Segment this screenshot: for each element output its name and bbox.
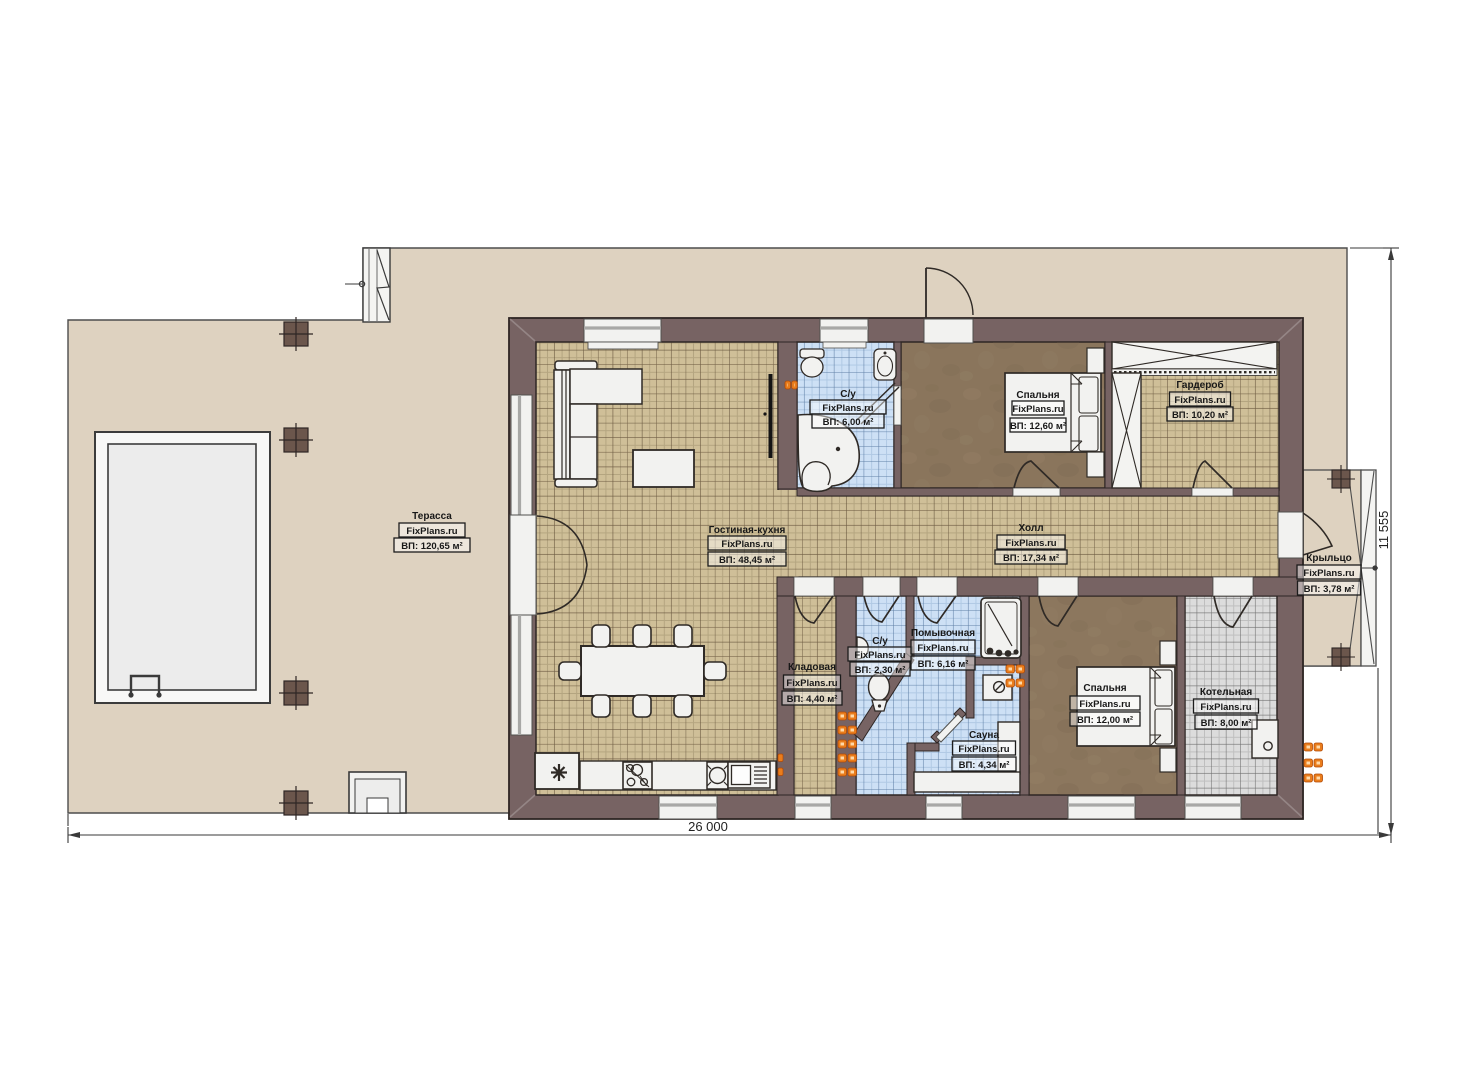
svg-text:Кладовая: Кладовая bbox=[788, 662, 836, 673]
svg-text:FixPlans.ru: FixPlans.ru bbox=[822, 403, 873, 414]
svg-text:С/у: С/у bbox=[872, 636, 888, 647]
svg-text:FixPlans.ru: FixPlans.ru bbox=[1005, 538, 1056, 549]
svg-text:ВП: 8,00 м²: ВП: 8,00 м² bbox=[1201, 718, 1252, 729]
svg-text:ВП: 120,65 м²: ВП: 120,65 м² bbox=[401, 541, 462, 552]
svg-text:ВП: 12,60 м²: ВП: 12,60 м² bbox=[1010, 421, 1066, 432]
svg-text:FixPlans.ru: FixPlans.ru bbox=[917, 643, 968, 654]
svg-text:FixPlans.ru: FixPlans.ru bbox=[786, 678, 837, 689]
svg-text:ВП: 3,78 м²: ВП: 3,78 м² bbox=[1304, 584, 1355, 595]
svg-text:26 000: 26 000 bbox=[688, 819, 728, 834]
svg-text:ВП: 6,16 м²: ВП: 6,16 м² bbox=[918, 659, 969, 670]
svg-text:Помывочная: Помывочная bbox=[911, 628, 975, 639]
svg-text:ВП: 17,34 м²: ВП: 17,34 м² bbox=[1003, 553, 1059, 564]
svg-text:Спальня: Спальня bbox=[1083, 683, 1126, 694]
svg-text:FixPlans.ru: FixPlans.ru bbox=[721, 539, 772, 550]
svg-text:Котельная: Котельная bbox=[1200, 687, 1253, 698]
svg-text:FixPlans.ru: FixPlans.ru bbox=[1200, 702, 1251, 713]
svg-text:Терасса: Терасса bbox=[412, 511, 452, 522]
svg-text:ВП: 48,45 м²: ВП: 48,45 м² bbox=[719, 555, 775, 566]
svg-text:11 555: 11 555 bbox=[1376, 511, 1391, 550]
svg-text:ВП: 12,00 м²: ВП: 12,00 м² bbox=[1077, 715, 1133, 726]
svg-text:С/у: С/у bbox=[840, 389, 856, 400]
svg-text:FixPlans.ru: FixPlans.ru bbox=[1012, 404, 1063, 415]
svg-text:Гостиная-кухня: Гостиная-кухня bbox=[709, 525, 786, 536]
svg-text:ВП: 4,40 м²: ВП: 4,40 м² bbox=[787, 694, 838, 705]
svg-text:FixPlans.ru: FixPlans.ru bbox=[406, 526, 457, 537]
svg-text:FixPlans.ru: FixPlans.ru bbox=[1079, 699, 1130, 710]
svg-text:ВП: 6,00 м²: ВП: 6,00 м² bbox=[823, 417, 874, 428]
svg-text:FixPlans.ru: FixPlans.ru bbox=[854, 650, 905, 661]
svg-text:Гардероб: Гардероб bbox=[1176, 379, 1223, 391]
svg-text:FixPlans.ru: FixPlans.ru bbox=[1174, 395, 1225, 406]
svg-text:Сауна: Сауна bbox=[969, 730, 1000, 741]
svg-text:ВП: 10,20 м²: ВП: 10,20 м² bbox=[1172, 410, 1228, 421]
svg-text:Крыльцо: Крыльцо bbox=[1306, 553, 1352, 564]
svg-text:FixPlans.ru: FixPlans.ru bbox=[958, 744, 1009, 755]
svg-text:FixPlans.ru: FixPlans.ru bbox=[1303, 568, 1354, 579]
svg-text:ВП: 2,30 м²: ВП: 2,30 м² bbox=[855, 665, 906, 676]
svg-text:Спальня: Спальня bbox=[1016, 390, 1059, 401]
svg-text:Холл: Холл bbox=[1018, 523, 1043, 534]
svg-text:ВП: 4,34 м²: ВП: 4,34 м² bbox=[959, 760, 1010, 771]
